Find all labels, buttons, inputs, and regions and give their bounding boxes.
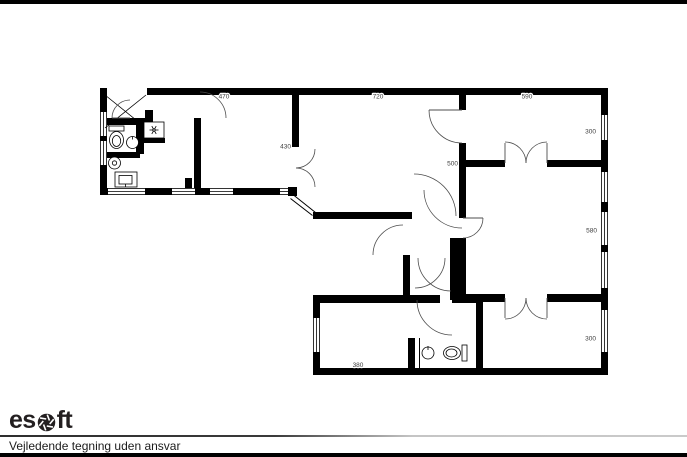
toilet-icon [444,345,468,361]
extractor-fan-icon [144,122,164,138]
shower-icon [115,172,137,187]
diagonal-window [288,187,316,216]
dimension-label: 590 [522,94,533,101]
logo-text-suffix: ft [57,406,72,435]
logo-text-prefix: es [9,406,36,435]
dimension-label: 300 [585,336,596,343]
sink-icon [422,346,434,359]
washing-machine-icon [109,157,121,169]
dimension-label: 470 [219,94,230,101]
dimension-label: 720 [373,94,384,101]
esoft-logo: es ft [9,406,72,435]
disclaimer-text: Vejledende tegning uden ansvar [9,439,180,453]
dimension-label: 500 [447,161,458,168]
aperture-icon [37,413,56,432]
windows [101,112,607,352]
chimney-block [450,238,466,300]
dimension-label: 380 [353,362,364,369]
sink-icon [127,137,139,149]
dimension-labels: 470 720 590 300 430 500 580 300 380 [219,94,598,370]
footer-divider [0,435,687,437]
dimension-label: 300 [585,129,596,136]
toilet-icon [109,126,124,149]
floor-plan-page: 470 720 590 300 430 500 580 300 380 es f… [0,0,687,457]
dimension-label: 430 [280,144,291,151]
walls [100,88,608,375]
dimension-label: 580 [586,228,597,235]
floor-plan: 470 720 590 300 430 500 580 300 380 [0,0,687,457]
fixtures [109,122,468,368]
